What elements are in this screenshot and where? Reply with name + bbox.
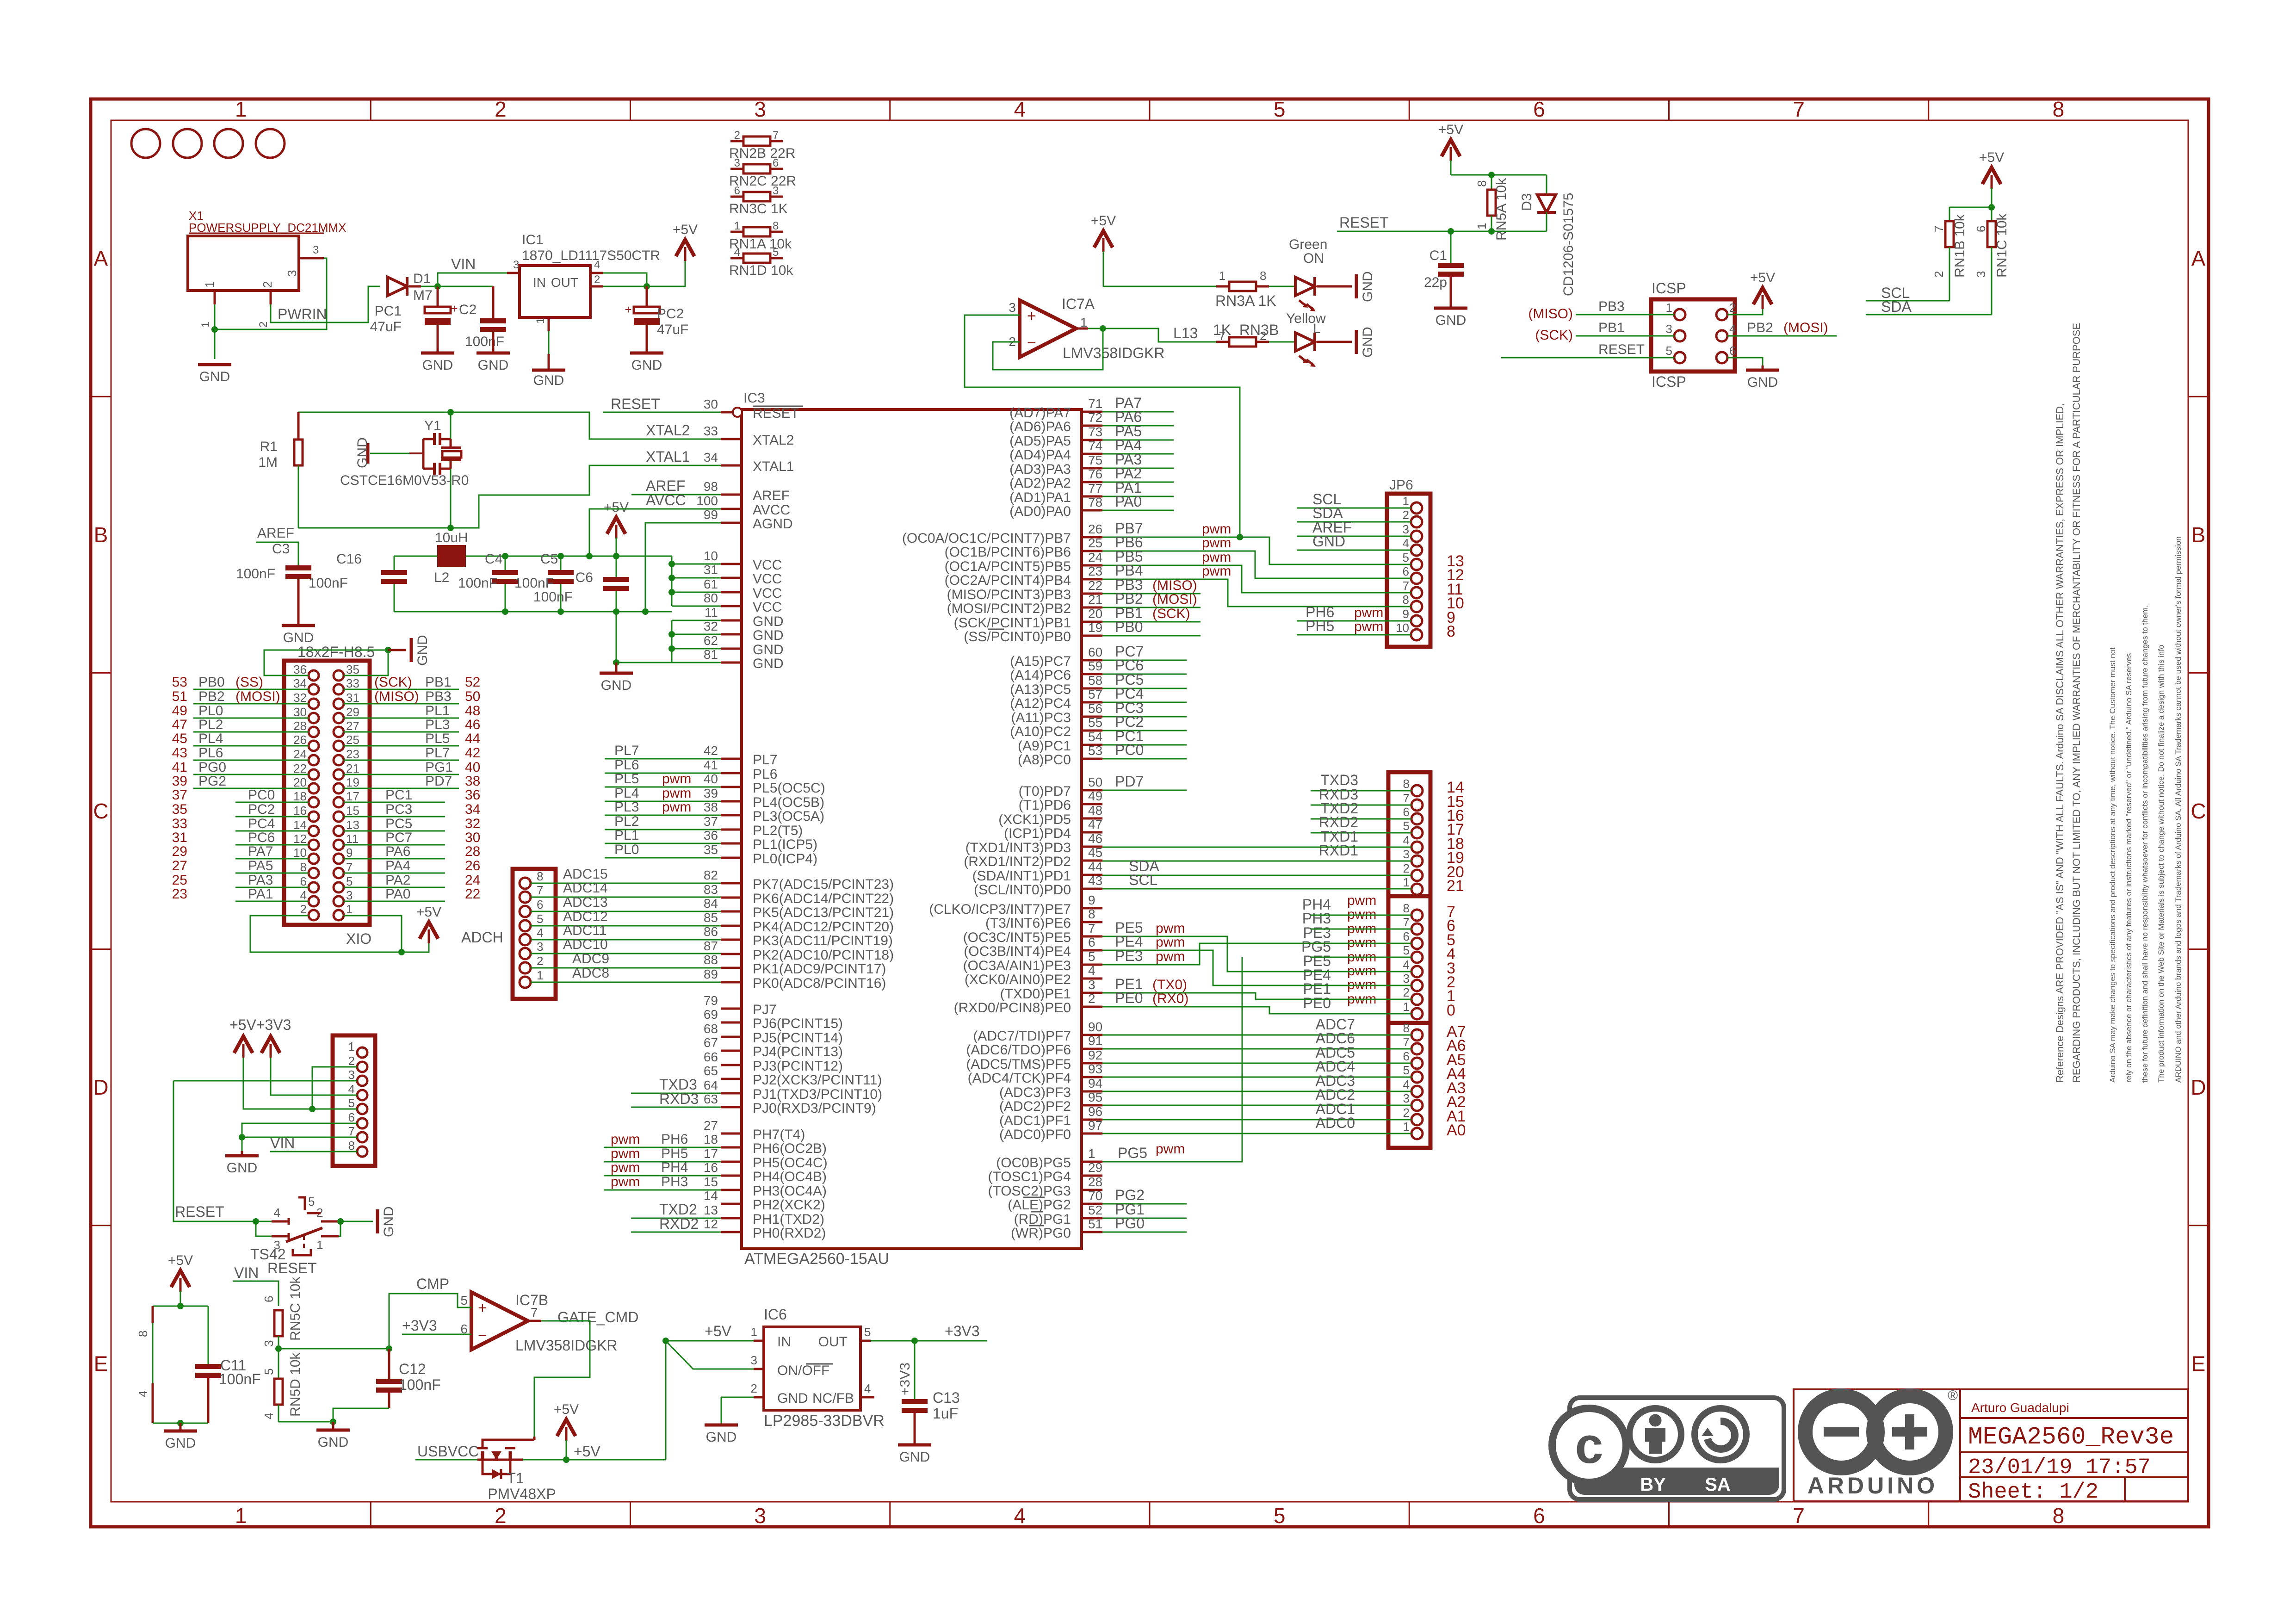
svg-text:2: 2	[1260, 329, 1266, 343]
svg-text:(A8)PC0: (A8)PC0	[1018, 752, 1071, 768]
svg-text:3: 3	[537, 940, 543, 954]
svg-text:40: 40	[465, 760, 480, 775]
svg-text:PH2(XCK2): PH2(XCK2)	[753, 1197, 825, 1213]
svg-text:PK7(ADC15/PCINT23): PK7(ADC15/PCINT23)	[753, 877, 894, 892]
svg-text:28: 28	[293, 719, 307, 733]
svg-text:33: 33	[346, 676, 359, 690]
svg-text:47: 47	[172, 717, 187, 732]
svg-text:(TOSC1)PG4: (TOSC1)PG4	[988, 1169, 1071, 1184]
svg-text:15: 15	[704, 1175, 718, 1189]
svg-text:AVCC: AVCC	[753, 502, 790, 518]
svg-text:PL7: PL7	[753, 752, 777, 768]
svg-text:1M: 1M	[258, 455, 278, 470]
svg-text:PK6(ADC14/PCINT22): PK6(ADC14/PCINT22)	[753, 891, 894, 906]
svg-text:c: c	[1575, 1417, 1603, 1474]
svg-text:50: 50	[1088, 775, 1102, 789]
svg-text:36: 36	[293, 663, 307, 676]
svg-text:22p: 22p	[1424, 275, 1447, 290]
svg-text:32: 32	[293, 691, 307, 705]
svg-text:1: 1	[203, 281, 217, 288]
svg-text:3: 3	[513, 259, 519, 271]
svg-text:C4: C4	[485, 551, 502, 567]
svg-text:PJ4(PCINT13): PJ4(PCINT13)	[753, 1044, 843, 1059]
svg-text:JP6: JP6	[1389, 477, 1413, 493]
svg-text:D: D	[2191, 1075, 2206, 1099]
svg-text:pwm: pwm	[1347, 893, 1376, 908]
svg-text:83: 83	[704, 882, 718, 897]
svg-text:34: 34	[465, 802, 480, 817]
svg-text:22: 22	[1088, 578, 1102, 593]
svg-text:VCC: VCC	[753, 571, 782, 587]
svg-text:1: 1	[348, 1040, 355, 1053]
svg-text:RXD3: RXD3	[659, 1090, 699, 1107]
svg-text:GND: GND	[1312, 533, 1345, 550]
svg-text:26: 26	[293, 733, 307, 747]
svg-text:ADC13: ADC13	[563, 895, 608, 910]
svg-text:E: E	[2191, 1351, 2206, 1375]
svg-text:19: 19	[346, 775, 359, 789]
svg-text:4: 4	[864, 1381, 871, 1395]
svg-text:5: 5	[1088, 949, 1095, 964]
svg-text:(MISO): (MISO)	[1528, 306, 1573, 322]
svg-text:GND: GND	[601, 678, 632, 693]
svg-text:PH7(T4): PH7(T4)	[753, 1127, 805, 1142]
svg-text:46: 46	[465, 717, 480, 732]
svg-text:ADC15: ADC15	[563, 867, 608, 882]
svg-text:43: 43	[1088, 873, 1102, 888]
svg-text:+5V: +5V	[1438, 122, 1463, 137]
svg-text:PJ1(TXD3/PCINT10): PJ1(TXD3/PCINT10)	[753, 1087, 882, 1102]
svg-text:AREF: AREF	[753, 488, 790, 503]
svg-text:2: 2	[260, 281, 274, 288]
svg-text:RESET: RESET	[1339, 214, 1389, 231]
svg-text:(ADC6/TDO)PF6: (ADC6/TDO)PF6	[966, 1042, 1071, 1058]
svg-text:8: 8	[300, 860, 307, 874]
svg-text:(ADC4/TCK)PF4: (ADC4/TCK)PF4	[968, 1071, 1071, 1086]
svg-text:3: 3	[285, 270, 299, 277]
svg-text:3: 3	[754, 1504, 766, 1528]
svg-text:IC3: IC3	[743, 390, 765, 406]
svg-text:94: 94	[1088, 1076, 1102, 1090]
svg-text:PL3: PL3	[425, 717, 450, 732]
svg-text:2: 2	[495, 1504, 507, 1528]
svg-text:29: 29	[1088, 1160, 1102, 1175]
svg-text:PE0: PE0	[1115, 990, 1143, 1006]
svg-text:+5V: +5V	[168, 1253, 193, 1268]
svg-text:10: 10	[1396, 621, 1409, 635]
svg-text:3: 3	[1666, 322, 1672, 336]
svg-text:PL7: PL7	[614, 743, 639, 758]
svg-text:7: 7	[1403, 1035, 1410, 1049]
svg-text:PK4(ADC12/PCINT20): PK4(ADC12/PCINT20)	[753, 919, 894, 935]
svg-text:PJ7: PJ7	[753, 1002, 777, 1017]
svg-text:23: 23	[1088, 564, 1102, 578]
svg-text:17: 17	[346, 789, 359, 803]
svg-text:75: 75	[1088, 453, 1102, 467]
svg-text:PB3: PB3	[425, 689, 452, 704]
svg-text:(T3/INT6)PE6: (T3/INT6)PE6	[985, 916, 1071, 931]
svg-text:8: 8	[1447, 623, 1455, 640]
svg-text:2: 2	[495, 97, 507, 121]
svg-text:1: 1	[235, 1504, 247, 1528]
svg-text:PA4: PA4	[385, 858, 410, 873]
svg-text:PB1: PB1	[425, 675, 452, 690]
svg-text:ATMEGA2560-15AU: ATMEGA2560-15AU	[744, 1250, 889, 1268]
svg-text:9: 9	[1403, 607, 1409, 621]
svg-text:(AD7)PA7: (AD7)PA7	[1009, 405, 1071, 421]
svg-text:13: 13	[346, 818, 359, 832]
svg-text:9: 9	[346, 846, 353, 860]
svg-text:C13: C13	[933, 1389, 960, 1406]
svg-text:(RXD1/INT2)PD2: (RXD1/INT2)PD2	[964, 854, 1071, 869]
svg-text:D3: D3	[1519, 193, 1535, 211]
svg-text:30: 30	[704, 397, 718, 411]
svg-text:3: 3	[1974, 271, 1988, 278]
svg-text:rely on the absence or charact: rely on the absence or characteristics o…	[2124, 653, 2133, 1083]
svg-text:IN: IN	[533, 275, 546, 290]
svg-text:7: 7	[1932, 226, 1946, 232]
svg-text:ADC11: ADC11	[563, 923, 606, 938]
svg-text:PC6: PC6	[248, 830, 275, 845]
svg-text:PL2(T5): PL2(T5)	[753, 823, 803, 838]
svg-text:+5V: +5V	[1091, 213, 1116, 229]
svg-text:PK2(ADC10/PCINT18): PK2(ADC10/PCINT18)	[753, 948, 894, 963]
svg-text:AREF: AREF	[257, 526, 294, 541]
svg-text:GND: GND	[753, 642, 784, 657]
svg-text:18: 18	[293, 789, 307, 803]
svg-text:ON: ON	[1303, 251, 1324, 266]
svg-text:RXD1: RXD1	[1319, 842, 1358, 859]
svg-text:5: 5	[864, 1325, 871, 1339]
svg-text:1: 1	[235, 97, 247, 121]
svg-text:61: 61	[704, 577, 718, 591]
svg-text:1: 1	[534, 318, 547, 324]
svg-text:57: 57	[1088, 687, 1102, 701]
svg-text:6: 6	[1403, 805, 1410, 819]
svg-text:pwm: pwm	[662, 786, 691, 801]
svg-text:+: +	[451, 302, 458, 316]
svg-text:4: 4	[262, 1413, 276, 1419]
svg-text:31: 31	[346, 691, 359, 705]
svg-text:PA1: PA1	[248, 886, 273, 902]
svg-text:PK0(ADC8/PCINT16): PK0(ADC8/PCINT16)	[753, 976, 886, 991]
svg-text:63: 63	[704, 1092, 718, 1106]
svg-text:PJ2(XCK3/PCINT11): PJ2(XCK3/PCINT11)	[753, 1072, 882, 1088]
svg-text:PWRIN: PWRIN	[278, 306, 327, 322]
svg-text:PA0: PA0	[385, 886, 410, 902]
svg-text:6: 6	[1533, 97, 1545, 121]
svg-text:RN1B 10k: RN1B 10k	[1952, 214, 1968, 278]
svg-text:AVCC: AVCC	[646, 492, 686, 508]
svg-text:(A10)PC2: (A10)PC2	[1010, 724, 1071, 739]
svg-text:30: 30	[293, 705, 307, 719]
svg-text:89: 89	[704, 967, 718, 981]
svg-text:PC0: PC0	[248, 787, 275, 803]
svg-text:8: 8	[1403, 901, 1410, 915]
svg-text:52: 52	[1088, 1203, 1102, 1217]
svg-text:ADC14: ADC14	[563, 880, 608, 896]
svg-text:8: 8	[1260, 269, 1266, 283]
svg-text:22: 22	[465, 886, 480, 902]
svg-text:3: 3	[1403, 847, 1410, 861]
svg-text:5: 5	[308, 1195, 315, 1208]
svg-text:10: 10	[704, 549, 718, 563]
svg-text:51: 51	[1088, 1217, 1102, 1231]
svg-text:+5V: +5V	[604, 500, 629, 515]
svg-text:7: 7	[1403, 915, 1410, 929]
svg-text:XTAL1: XTAL1	[646, 448, 690, 465]
svg-text:6: 6	[1403, 929, 1410, 943]
svg-text:37: 37	[172, 787, 187, 803]
svg-text:1: 1	[1403, 1000, 1410, 1014]
svg-text:4: 4	[1014, 97, 1026, 121]
svg-text:6: 6	[734, 185, 740, 197]
svg-text:pwm: pwm	[611, 1174, 640, 1189]
svg-text:VCC: VCC	[753, 600, 782, 615]
svg-text:PG5: PG5	[1118, 1145, 1147, 1161]
svg-text:PL4(OC5B): PL4(OC5B)	[753, 795, 824, 810]
svg-text:(ADC2)PF2: (ADC2)PF2	[999, 1099, 1071, 1114]
svg-text:B: B	[2191, 523, 2206, 547]
svg-text:L13: L13	[1173, 325, 1198, 341]
svg-text:C6: C6	[576, 570, 593, 585]
svg-text:PA3: PA3	[248, 873, 273, 888]
svg-text:11: 11	[705, 605, 718, 619]
svg-text:VCC: VCC	[753, 586, 782, 601]
svg-text:ICSP: ICSP	[1652, 280, 1686, 297]
svg-text:7: 7	[1219, 329, 1225, 343]
svg-text:IC6: IC6	[764, 1306, 787, 1323]
svg-text:PE3: PE3	[1115, 948, 1143, 964]
svg-text:16: 16	[704, 1160, 718, 1175]
svg-text:PC1: PC1	[375, 304, 402, 319]
svg-text:76: 76	[1088, 467, 1102, 481]
svg-text:91: 91	[1088, 1034, 1102, 1048]
svg-text:PL1: PL1	[425, 703, 450, 719]
svg-text:BY: BY	[1640, 1474, 1666, 1495]
svg-text:3: 3	[751, 1353, 757, 1367]
svg-text:1: 1	[199, 322, 212, 328]
svg-text:PL5(OC5C): PL5(OC5C)	[753, 781, 825, 796]
svg-text:(OC1A/PCINT5)PB5: (OC1A/PCINT5)PB5	[945, 559, 1071, 574]
svg-text:LP2985-33DBVR: LP2985-33DBVR	[764, 1412, 885, 1430]
svg-text:55: 55	[1088, 715, 1102, 730]
svg-text:LMV358IDGKR: LMV358IDGKR	[515, 1337, 618, 1354]
svg-text:3: 3	[1403, 522, 1409, 536]
svg-text:25: 25	[1088, 536, 1102, 550]
svg-text:L2: L2	[434, 570, 449, 585]
svg-text:A: A	[94, 247, 108, 271]
svg-text:GND: GND	[533, 373, 564, 388]
svg-text:(ADC1)PF1: (ADC1)PF1	[999, 1113, 1071, 1128]
svg-text:GND: GND	[1747, 375, 1778, 390]
svg-text:(AD6)PA6: (AD6)PA6	[1009, 419, 1071, 434]
svg-text:PL3: PL3	[614, 799, 639, 815]
svg-text:1uF: 1uF	[933, 1405, 958, 1422]
svg-text:14: 14	[293, 818, 307, 832]
svg-text:26: 26	[465, 858, 480, 873]
svg-text:PH0(RXD2): PH0(RXD2)	[753, 1226, 826, 1241]
svg-text:4: 4	[537, 926, 543, 940]
svg-text:(MOSI): (MOSI)	[235, 689, 280, 704]
svg-text:RESET: RESET	[1598, 342, 1645, 357]
svg-text:78: 78	[1088, 495, 1102, 509]
svg-text:93: 93	[1088, 1062, 1102, 1076]
svg-text:29: 29	[346, 705, 359, 719]
svg-text:5: 5	[1403, 943, 1410, 957]
svg-text:+5V: +5V	[554, 1402, 579, 1417]
svg-text:40: 40	[704, 772, 718, 786]
svg-text:6: 6	[537, 898, 543, 911]
svg-text:17: 17	[704, 1146, 718, 1161]
svg-text:PG2: PG2	[198, 774, 226, 789]
svg-text:2: 2	[1403, 1106, 1410, 1120]
svg-text:46: 46	[1088, 831, 1102, 846]
svg-text:5: 5	[1403, 1063, 1410, 1077]
svg-text:58: 58	[1088, 673, 1102, 688]
svg-text:(TXD0)PE1: (TXD0)PE1	[1000, 986, 1071, 1002]
svg-text:27: 27	[704, 1118, 718, 1133]
svg-text:C12: C12	[399, 1361, 426, 1377]
svg-text:(TOSC2)PG3: (TOSC2)PG3	[988, 1183, 1071, 1199]
svg-text:PK3(ADC11/PCINT19): PK3(ADC11/PCINT19)	[753, 933, 893, 948]
svg-text:12: 12	[293, 832, 307, 846]
svg-text:(A11)PC3: (A11)PC3	[1011, 710, 1071, 725]
svg-text:(T1)PD6: (T1)PD6	[1019, 798, 1071, 813]
svg-text:48: 48	[1088, 803, 1102, 818]
svg-text:C: C	[93, 799, 108, 823]
svg-text:pwm: pwm	[1354, 619, 1383, 634]
svg-text:PL0: PL0	[198, 703, 223, 719]
svg-text:(OC1B/PCINT6)PB6: (OC1B/PCINT6)PB6	[945, 545, 1071, 560]
svg-text:Arduino SA may make changes to: Arduino SA may make changes to specifica…	[2108, 647, 2117, 1083]
svg-text:(TX0): (TX0)	[1152, 977, 1187, 992]
svg-text:PH5: PH5	[1306, 618, 1334, 634]
svg-text:(ICP1)PD4: (ICP1)PD4	[1004, 826, 1071, 841]
svg-text:(MISO): (MISO)	[1152, 578, 1197, 593]
svg-text:GND: GND	[355, 437, 370, 468]
svg-text:ARDUINO and other Arduino bran: ARDUINO and other Arduino brands and log…	[2174, 536, 2183, 1083]
svg-text:ARDUINO: ARDUINO	[1807, 1473, 1938, 1499]
svg-text:1: 1	[1475, 223, 1489, 229]
svg-text:C: C	[2191, 799, 2206, 823]
svg-text:25: 25	[346, 733, 359, 747]
svg-text:(SCK): (SCK)	[1152, 606, 1190, 621]
svg-text:71: 71	[1088, 396, 1102, 411]
svg-text:PH1(TXD2): PH1(TXD2)	[753, 1212, 824, 1227]
svg-text:GATE_CMD: GATE_CMD	[557, 1309, 638, 1326]
svg-text:16: 16	[293, 804, 307, 818]
svg-text:(T0)PD7: (T0)PD7	[1019, 784, 1071, 799]
svg-text:31: 31	[704, 563, 718, 577]
svg-text:5: 5	[1666, 344, 1672, 358]
svg-text:5: 5	[1403, 551, 1409, 564]
svg-text:(RX0): (RX0)	[1152, 991, 1188, 1006]
svg-text:100nF: 100nF	[533, 589, 573, 605]
svg-text:44: 44	[1088, 860, 1102, 874]
svg-text:31: 31	[172, 830, 187, 845]
svg-text:85: 85	[704, 911, 718, 925]
svg-text:M7: M7	[413, 288, 433, 303]
svg-text:(A9)PC1: (A9)PC1	[1018, 738, 1071, 754]
svg-text:4: 4	[594, 259, 600, 271]
svg-text:(SS): (SS)	[235, 675, 263, 690]
svg-text:CMP: CMP	[416, 1276, 449, 1292]
svg-text:23: 23	[172, 886, 187, 902]
svg-text:1: 1	[734, 220, 740, 232]
svg-text:Reference Designs ARE PROVIDED: Reference Designs ARE PROVIDED "AS IS" A…	[2054, 403, 2066, 1083]
svg-text:PH5: PH5	[661, 1146, 688, 1161]
svg-text:(MISO): (MISO)	[374, 689, 419, 704]
svg-text:19: 19	[1088, 620, 1102, 635]
svg-text:pwm: pwm	[1202, 535, 1231, 551]
svg-text:PH5(OC4C): PH5(OC4C)	[753, 1155, 828, 1171]
svg-text:PL2: PL2	[198, 717, 223, 732]
svg-text:(ADC3)PF3: (ADC3)PF3	[999, 1085, 1071, 1100]
svg-text:(A12)PC4: (A12)PC4	[1010, 696, 1071, 711]
svg-text:(ADC0)PF0: (ADC0)PF0	[999, 1127, 1071, 1142]
svg-text:2: 2	[1403, 985, 1410, 999]
svg-text:1: 1	[1219, 269, 1225, 283]
svg-text:5: 5	[1274, 1504, 1286, 1528]
svg-text:PMV48XP: PMV48XP	[488, 1486, 556, 1502]
svg-text:PL6: PL6	[614, 757, 639, 773]
svg-text:(XCK1)PD5: (XCK1)PD5	[998, 812, 1071, 827]
svg-text:(ADC5/TMS)PF5: (ADC5/TMS)PF5	[966, 1057, 1071, 1072]
svg-text:pwm: pwm	[611, 1132, 640, 1147]
svg-text:(SCL/INT0)PD0: (SCL/INT0)PD0	[974, 882, 1071, 898]
svg-text:6: 6	[1403, 1049, 1410, 1063]
svg-text:R1: R1	[260, 439, 278, 454]
svg-text:4: 4	[1403, 1078, 1410, 1091]
svg-text:XTAL1: XTAL1	[753, 459, 794, 474]
svg-text:SA: SA	[1705, 1474, 1731, 1495]
svg-text:(WR)PG0: (WR)PG0	[1011, 1226, 1071, 1241]
svg-text:+5V: +5V	[673, 222, 698, 237]
svg-text:87: 87	[704, 939, 718, 953]
svg-text:5: 5	[1274, 97, 1286, 121]
svg-text:38: 38	[465, 774, 480, 789]
svg-text:RESET: RESET	[175, 1203, 224, 1220]
svg-text:(AD2)PA2: (AD2)PA2	[1009, 476, 1071, 491]
svg-text:(OC3A/AIN1)PE3: (OC3A/AIN1)PE3	[963, 958, 1071, 973]
svg-text:PC2: PC2	[248, 802, 275, 817]
svg-text:(XCK0/AIN0)PE2: (XCK0/AIN0)PE2	[965, 972, 1071, 987]
svg-text:70: 70	[1088, 1189, 1102, 1203]
svg-text:(MOSI): (MOSI)	[1152, 592, 1197, 607]
svg-text:PK5(ADC13/PCINT21): PK5(ADC13/PCINT21)	[753, 905, 894, 920]
svg-text:1: 1	[1088, 1146, 1095, 1161]
svg-text:+3V3: +3V3	[945, 1323, 980, 1339]
svg-text:PC0: PC0	[1115, 742, 1144, 758]
svg-text:12: 12	[704, 1217, 718, 1231]
svg-text:pwm: pwm	[662, 771, 691, 787]
svg-text:GND: GND	[706, 1430, 737, 1445]
svg-text:VIN: VIN	[270, 1135, 295, 1152]
svg-text:6: 6	[1729, 344, 1736, 358]
svg-text:23/01/19 17:57: 23/01/19 17:57	[1968, 1456, 2151, 1480]
svg-text:100nF: 100nF	[458, 576, 497, 591]
svg-text:7: 7	[1403, 791, 1410, 805]
svg-text:XIO: XIO	[346, 930, 371, 947]
svg-text:5: 5	[262, 1369, 276, 1375]
svg-text:64: 64	[704, 1078, 718, 1092]
svg-text:22: 22	[293, 762, 307, 775]
svg-text:53: 53	[1088, 743, 1102, 758]
svg-text:ICSP: ICSP	[1652, 373, 1686, 390]
svg-text:6: 6	[773, 157, 779, 169]
svg-text:27: 27	[346, 719, 359, 733]
